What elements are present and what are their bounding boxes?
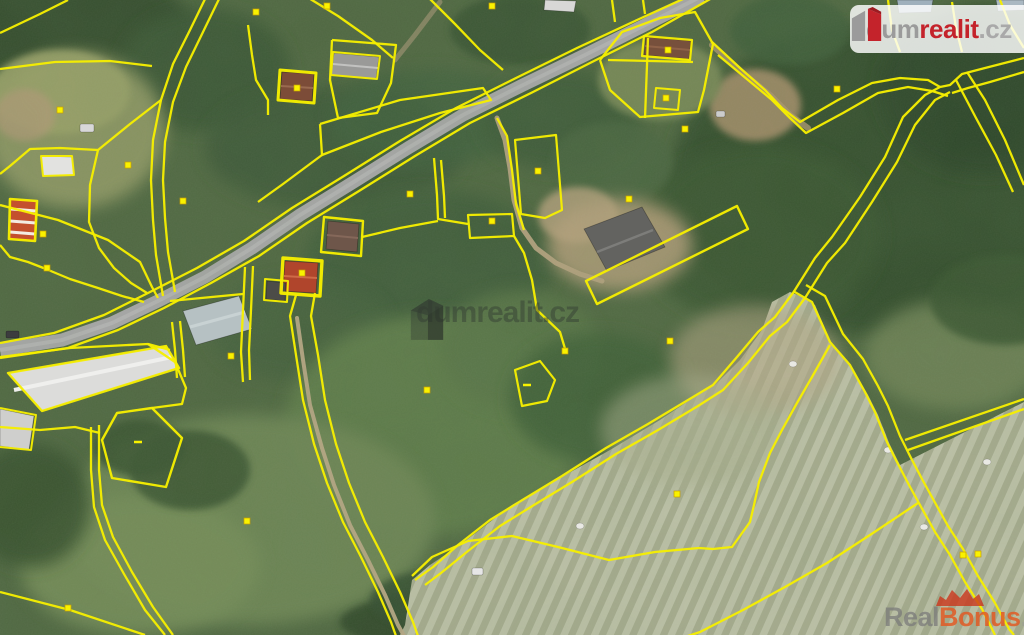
house-dark-mid (326, 221, 359, 252)
parcel-marker (626, 196, 632, 202)
hay-bale (576, 523, 584, 529)
logo-text-realit: realit (919, 14, 978, 44)
parcel-marker (244, 518, 250, 524)
parcel-marker (65, 605, 71, 611)
parcel-marker (40, 231, 46, 237)
dumrealit-logo: dumrealit.cz (850, 5, 1024, 53)
striped-roof-house (9, 199, 37, 241)
parcel-marker (299, 270, 305, 276)
parcel-marker (125, 162, 131, 168)
parcel-marker (253, 9, 259, 15)
roof-top-edge-3 (544, 0, 576, 12)
parcel-marker (44, 265, 50, 271)
parcel-marker (489, 3, 495, 9)
parcel-marker (407, 191, 413, 197)
hay-bale (789, 361, 797, 367)
vehicle (6, 331, 19, 338)
parcel-marker (324, 3, 330, 9)
parcel-marker (562, 348, 568, 354)
parcel-marker (674, 491, 680, 497)
parcel-marker (667, 338, 673, 344)
parcel-marker (960, 552, 966, 558)
parcel-marker (975, 551, 981, 557)
hay-bale (983, 459, 991, 465)
parcel-marker (424, 387, 430, 393)
hay-bale (920, 524, 928, 530)
parcel-marker (180, 198, 186, 204)
satellite-grain-texture (0, 0, 1024, 635)
vehicle (472, 568, 483, 575)
parcel-marker (834, 86, 840, 92)
parcel-marker (228, 353, 234, 359)
parcel-marker (294, 85, 300, 91)
parcel-marker (489, 218, 495, 224)
map-canvas[interactable] (0, 0, 1024, 635)
logo-wordmark: dumrealit.cz (866, 14, 1012, 45)
parcel-marker (682, 126, 688, 132)
parcel-marker (535, 168, 541, 174)
parcel-marker (57, 107, 63, 113)
logo-text-cz: .cz (979, 14, 1012, 44)
satellite-map-view[interactable]: dumrealit.cz dumrealit.cz RealBonus.cz (0, 0, 1024, 635)
vehicle (716, 111, 725, 117)
parcel-marker (665, 47, 671, 53)
small-white-building (41, 156, 74, 176)
vehicle (80, 124, 94, 132)
parcel-marker (663, 95, 669, 101)
